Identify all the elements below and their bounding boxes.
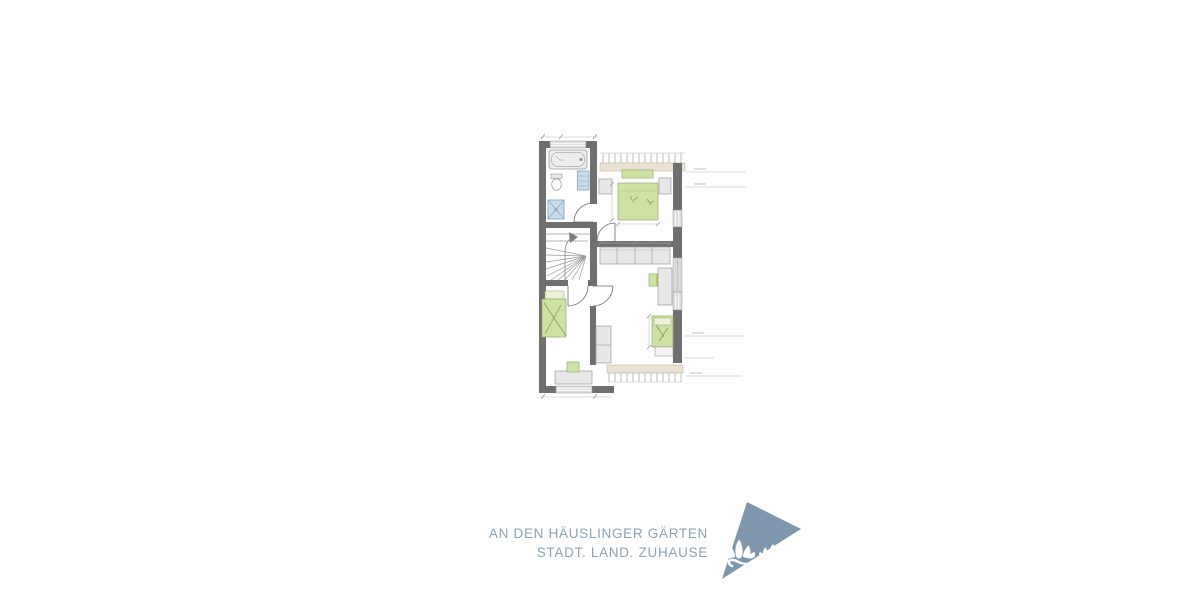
floor-plan-drawing bbox=[528, 116, 796, 410]
logo bbox=[714, 497, 810, 589]
headboard bbox=[622, 170, 653, 178]
desk-right bbox=[658, 268, 672, 305]
nightstand-left bbox=[599, 179, 612, 194]
roof-edge-band-bottom bbox=[607, 365, 683, 382]
window-right-upper bbox=[673, 210, 682, 227]
chair-left bbox=[567, 362, 579, 372]
floor-plan bbox=[528, 116, 796, 410]
bathtub bbox=[549, 150, 587, 169]
double-bed bbox=[618, 183, 658, 220]
logo-graphic bbox=[714, 497, 810, 589]
logo-triangle bbox=[722, 502, 801, 579]
toilet bbox=[551, 174, 562, 190]
desk-left bbox=[555, 371, 592, 384]
branding-text: AN DEN HÄUSLINGER GÄRTEN STADT. LAND. ZU… bbox=[489, 524, 708, 562]
window-bottom bbox=[556, 386, 592, 393]
door-swing-room-left bbox=[568, 286, 588, 306]
window-top bbox=[550, 141, 586, 148]
door-swing-room-right bbox=[593, 286, 613, 306]
brand-line-1: AN DEN HÄUSLINGER GÄRTEN bbox=[489, 524, 708, 543]
roof-edge-band-top bbox=[600, 153, 685, 171]
shower bbox=[548, 200, 564, 219]
window-right-lower bbox=[673, 292, 682, 310]
bathroom-fixtures bbox=[548, 150, 589, 219]
room-left-furniture bbox=[542, 291, 592, 384]
closet bbox=[596, 326, 611, 363]
brand-line-2: STADT. LAND. ZUHAUSE bbox=[489, 543, 708, 562]
towel-radiator bbox=[578, 171, 590, 190]
door-swing-bedroom bbox=[597, 223, 615, 241]
room-right-furniture bbox=[596, 268, 673, 363]
window-right-middle bbox=[673, 258, 682, 292]
door-swing-bath bbox=[574, 203, 593, 222]
bedroom-furniture bbox=[599, 170, 671, 226]
pillow bbox=[545, 291, 564, 299]
winder-staircase bbox=[546, 232, 590, 285]
nightstand-right bbox=[659, 178, 671, 194]
